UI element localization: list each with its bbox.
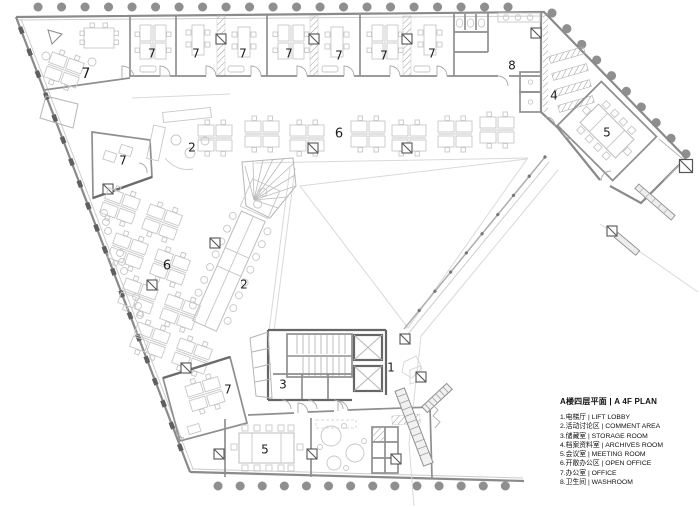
legend-title: A楼四层平面 | A 4F PLAN (560, 396, 698, 407)
legend-item: 2.活动讨论区 | COMMENT AREA (560, 422, 698, 431)
corner-office (42, 23, 134, 93)
room-label-5: 5 (603, 126, 611, 140)
room-label-7: 7 (119, 154, 127, 168)
comment-area-upper (147, 108, 212, 170)
room-label-7: 7 (148, 47, 156, 61)
legend-item: 8.卫生间 | WASHROOM (560, 478, 698, 487)
main-stair (287, 334, 352, 377)
lift-shafts (354, 335, 382, 391)
room-label-7: 7 (82, 66, 91, 82)
room-label-2: 2 (188, 141, 196, 155)
room-label-6: 6 (163, 259, 171, 274)
room-label-7: 7 (239, 47, 247, 61)
legend-item: 5.会议室 | MEETING ROOM (560, 450, 698, 459)
legend-items: 1.电梯厅 | LIFT LOBBY2.活动讨论区 | COMMENT AREA… (560, 413, 698, 487)
legend-item: 3.储藏室 | STORAGE ROOM (560, 432, 698, 441)
room-label-4: 4 (550, 89, 558, 103)
room-label-7: 7 (335, 49, 343, 63)
room-label-2: 2 (240, 278, 248, 292)
lounge-room (316, 420, 367, 471)
legend-item: 7.办公室 | OFFICE (560, 469, 698, 478)
room-label-8: 8 (508, 59, 516, 73)
room-label-3: 3 (279, 378, 287, 392)
legend: A楼四层平面 | A 4F PLAN 1.电梯厅 | LIFT LOBBY2.活… (560, 396, 698, 487)
room-label-5: 5 (261, 443, 269, 457)
room-label-7: 7 (224, 383, 232, 397)
legend-item: 6.开敞办公区 | OPEN OFFICE (560, 459, 698, 468)
legend-item: 4.档案资料室 | ARCHIVES ROOM (560, 441, 698, 450)
room-label-7: 7 (428, 47, 436, 61)
bottom-wing (214, 372, 452, 478)
meeting-room-5-east (558, 82, 693, 256)
room-label-7: 7 (380, 49, 388, 63)
washroom-8 (454, 13, 541, 112)
room-label-6: 6 (335, 127, 343, 142)
floor-plan-page: 77777777845267627315 A楼四层平面 | A 4F PLAN … (0, 0, 700, 507)
legend-item: 1.电梯厅 | LIFT LOBBY (560, 413, 698, 422)
room-label-1: 1 (387, 361, 395, 375)
comment-bar (184, 176, 288, 335)
office-row (130, 14, 454, 77)
room-label-7: 7 (192, 47, 200, 61)
room-label-7: 7 (285, 47, 293, 61)
